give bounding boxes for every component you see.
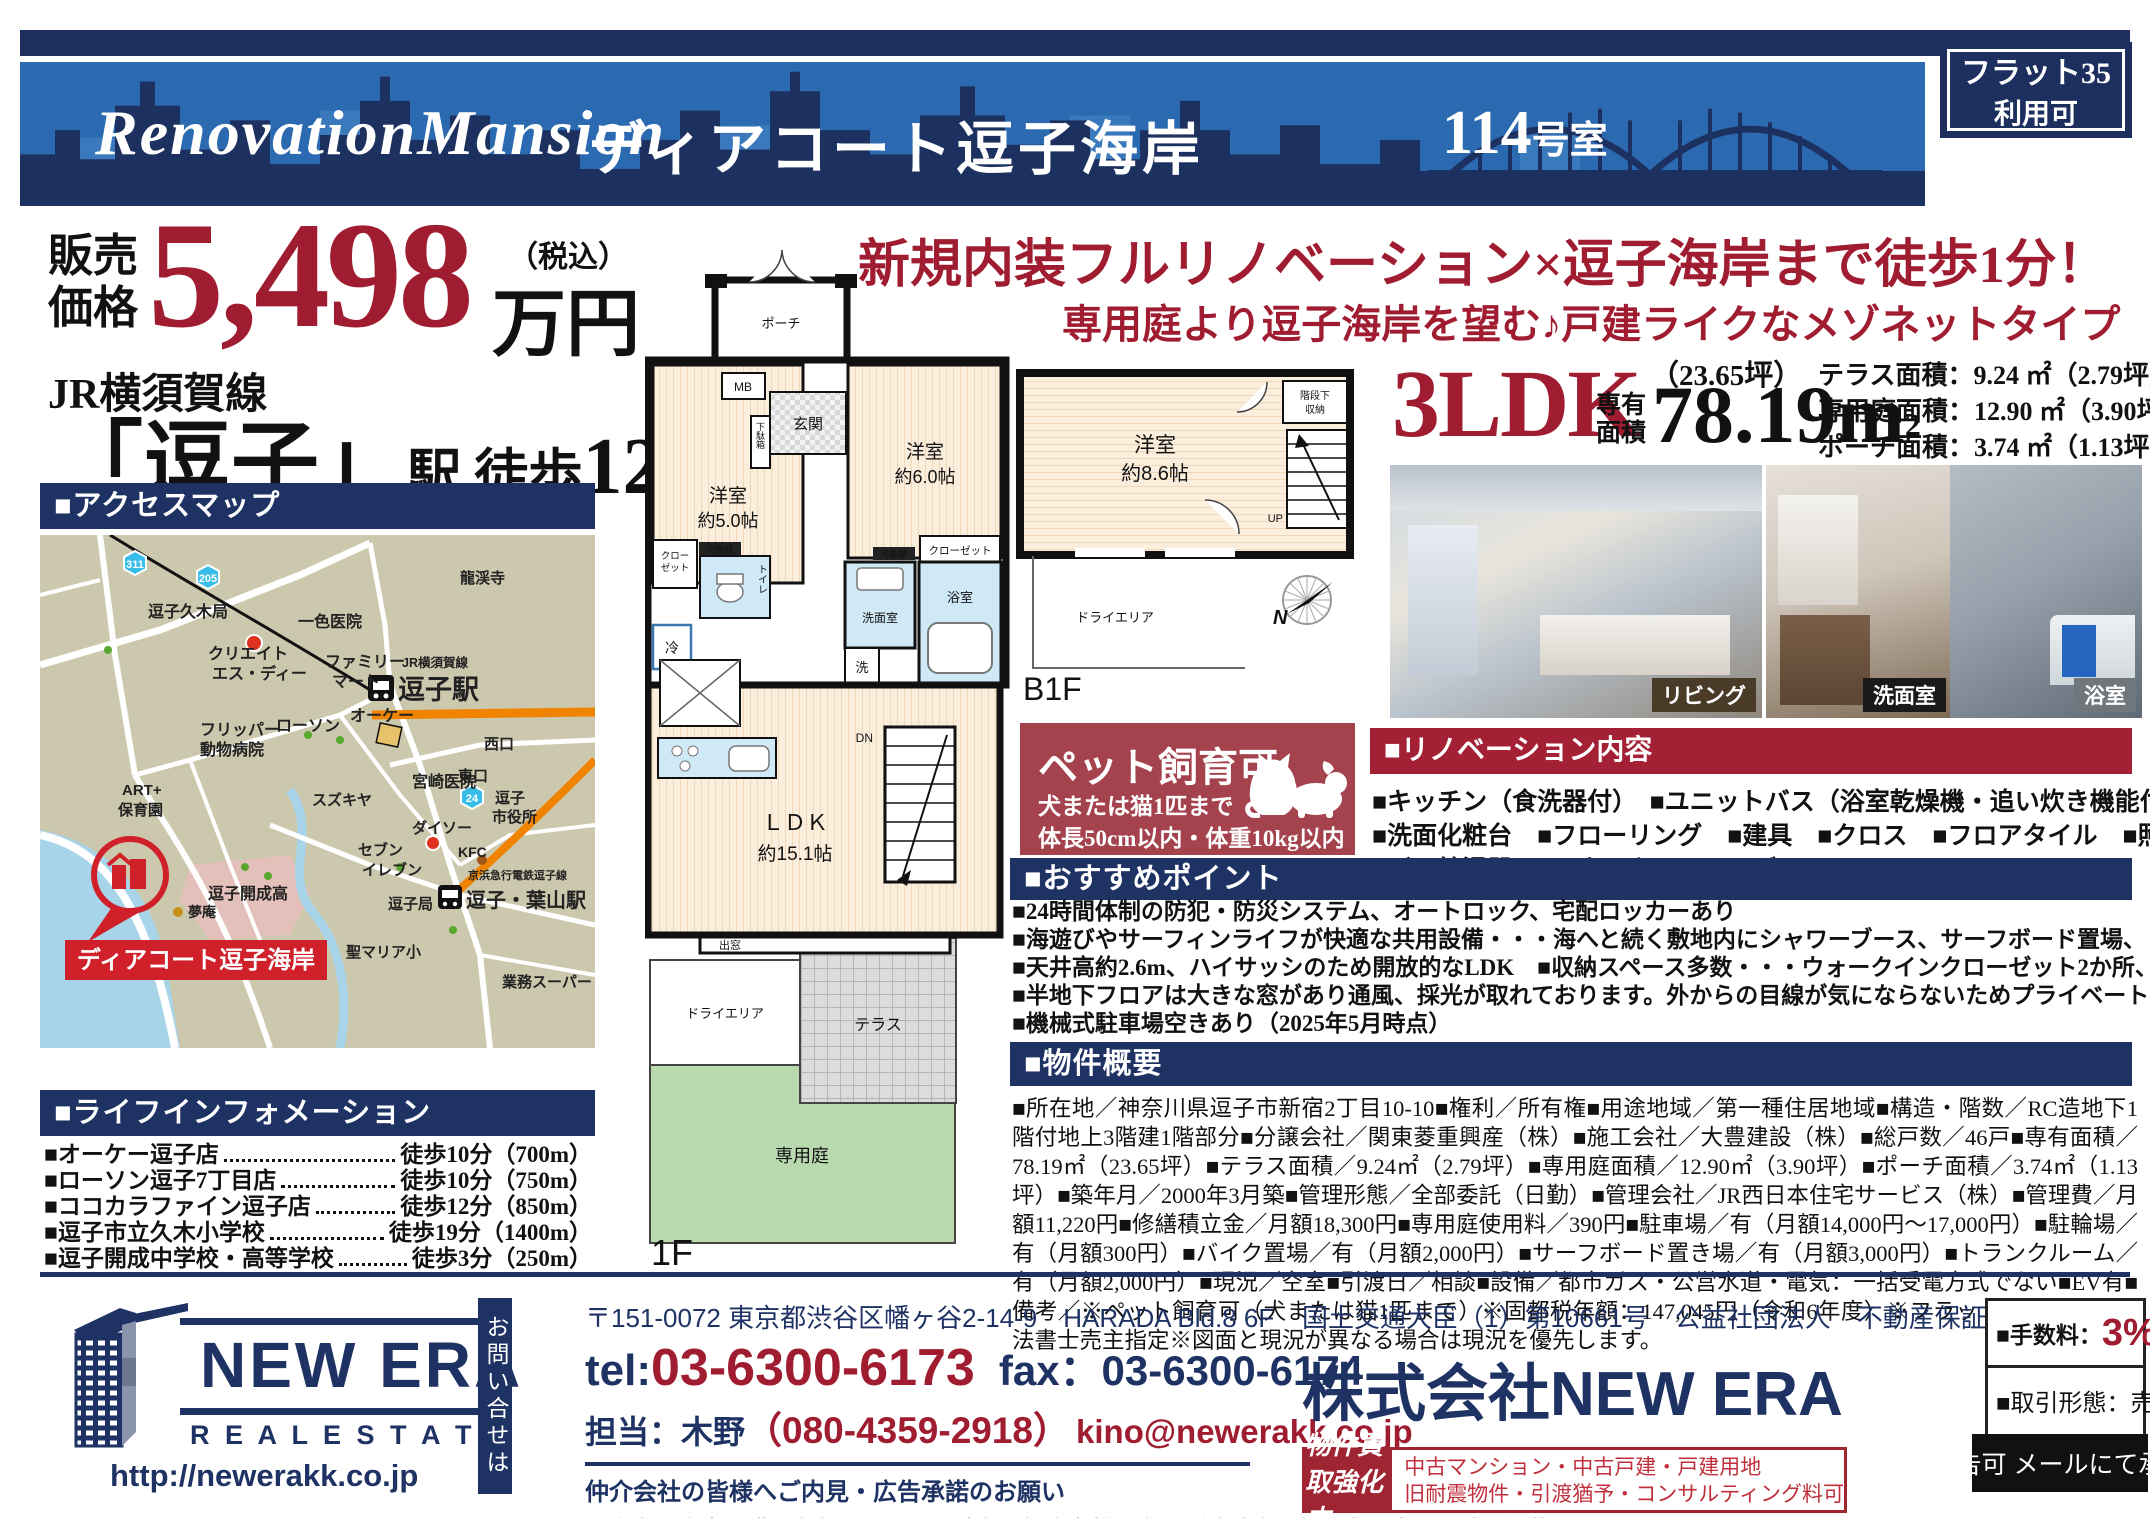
life-info-list: ■オーケー逗子店徒歩10分（700m） ■ローソン逗子7丁目店徒歩10分（750… [44,1143,592,1273]
contact-block: 〒151-0072 東京都渋谷区幡ヶ谷2-14-9 HARADA Bld.8 6… [585,1298,1250,1518]
label-shelf1: 可動棚 [707,544,733,554]
route-205-label: 205 [199,573,217,585]
stairs-down [885,727,955,882]
flat35-badge: フラット35 利用可 [1940,42,2132,138]
map-label-nishiguchi: 西口 [484,736,514,753]
map-label-miyazaki: 宮崎医院 [412,772,476,791]
map-label-seven2: イレブン [362,861,422,879]
label-porch: ポーチ [761,316,800,331]
headline-line1: 新規内装フルリノベーション×逗子海岸まで徒歩1分！ [858,222,2109,297]
label-closet-left1: クロー [661,551,690,562]
understairs-storage [1283,381,1347,423]
flat35-line1: フラット35 [1961,48,2111,92]
logo-sub: R E A L E S T A T E [190,1420,509,1451]
point-line: ■機械式駐車場空きあり（2025年5月時点） [1012,1010,2150,1038]
company-block: 国土交通大臣（1）第10661号 公益社団法人 不動産保証協会 株式会社NEW … [1302,1298,1847,1513]
room-number: 114号室 [1442,98,1608,169]
point-line: ■半地下フロアは大きな窓があり通風、採光が取れております。外からの目線が気になら… [1012,982,2150,1010]
list-item: ■逗子開成中学校・高等学校徒歩3分（250m） [44,1247,592,1273]
contact-rule-top [585,1462,1250,1466]
kaitori-detail: 中古マンション・中古戸建・戸建用地 旧耐震物件・引渡猶予・コンサルティング料可 [1392,1450,1844,1510]
map-dot-yumean [173,907,183,917]
label-b1f-bed2: 約8.6帖 [1121,462,1189,485]
points-list: ■24時間体制の防犯・防災システム、オートロック、宅配ロッカーあり ■海遊びやサ… [1012,898,2150,1038]
map-label-isshiki: 一色医院 [298,612,362,631]
pet-line2: 体長50cm以内・体重10kg以内 [1038,819,1345,853]
contact-person: 担当：木野 [585,1414,745,1450]
tel-label: tel: [585,1346,651,1395]
headline-line2: 専用庭より逗子海岸を望む♪戸建ライクなメゾネットタイプ [1062,292,2120,350]
map-label-gyomu: 業務スーパー [501,973,592,991]
header-top-strip [20,30,2130,56]
map-label-seven1: セブン [358,841,403,859]
point-line: ■天井高約2.6m、ハイサッシのため開放的なLDK ■収納スペース多数・・・ウォ… [1012,954,2150,982]
label-bay-window: 出窓 [719,938,741,952]
label-bathroom: 浴室 [947,590,973,605]
map-label-famima2: マート [332,674,380,691]
terrace-area-text: テラス面積：9.24 ㎡（2.79坪） [1818,358,2150,394]
label-washroom: 洗面室 [862,610,898,625]
header-banner: RenovationMansion ディアコート逗子海岸 114号室 [20,62,1925,206]
fee-box: ■手数料：3%（税込） ■取引形態：売主 [1985,1298,2146,1438]
property-name: ディアコート逗子海岸 [588,102,1204,186]
label-understairs1: 階段下 [1300,389,1330,402]
photo-label-washroom: 洗面室 [1863,678,1946,712]
map-marker-ok-store [376,723,402,747]
label-bed6a: 洋室 [906,441,944,463]
route-24-label: 24 [466,793,479,805]
property-label-text: ディアコート逗子海岸 [77,946,315,974]
porch-area-text: ポーチ面積：3.74 ㎡（1.13坪） [1818,430,2150,466]
map-label-art2: 保育園 [117,801,163,819]
company-name: 株式会社NEW ERA [1302,1343,1847,1433]
label-understairs2: 収納 [1305,403,1325,416]
map-label-flipper1: フリッパー [200,721,280,739]
company-address: 〒151-0072 東京都渋谷区幡ヶ谷2-14-9 HARADA Bld.8 6… [585,1298,1250,1335]
map-label-yumean: 夢庵 [188,904,217,920]
garden-area-text: 専用庭面積：12.90 ㎡（3.90坪） [1818,394,2150,430]
point-line: ■24時間体制の防犯・防災システム、オートロック、宅配ロッカーあり [1012,898,2150,926]
newera-logo: NEW ERA R E A L E S T A T E http://newer… [60,1296,520,1496]
room-number-suffix: 号室 [1532,120,1608,162]
label-terrace: テラス [854,1017,902,1034]
map-label-suzukiya: スズキヤ [312,791,372,809]
tel-fax-row: tel:03-6300-6173fax：03-6300-6174 [585,1337,1250,1398]
map-pin-daiso [426,836,440,850]
map-label-create2: エス・ディー [212,664,307,683]
fee-value: 3% [2102,1312,2150,1355]
contact-person-row: 担当：木野（080-4359-2918）kino@newerakk.co.jp [585,1400,1250,1454]
map-label-kfc: KFC [458,844,487,860]
access-map: 311 205 24 逗子久木局 一色医院 龍渓寺 クリエイト エス・ディー [40,535,595,1048]
map-label-famima1: ファミリー [325,654,405,671]
label-genkan: 玄関 [793,416,823,433]
cat-dog-icon [1232,737,1347,819]
notice-title: 仲介会社の皆様へご内見・広告承諾のお願い [585,1472,1250,1507]
map-label-zushi-station: 逗子駅 [398,675,479,705]
map-label-shiyakusho2: 市役所 [492,808,537,826]
area-label: 専有面積 [1596,392,1646,448]
label-bed5b: 約5.0帖 [697,511,758,531]
map-label-create1: クリエイト [208,645,288,663]
label-ldk1: ＬＤＫ [762,810,828,835]
footer-divider [40,1272,2130,1277]
kaitori-row: 物件買取強化中 中古マンション・中古戸建・戸建用地 旧耐震物件・引渡猶予・コンサ… [1302,1447,1847,1513]
label-getabako: 下駄箱 [755,422,765,450]
label-bed5a: 洋室 [709,485,747,507]
brand-title: RenovationMansion [95,96,666,170]
label-closet-right: クローゼット [929,545,992,557]
photo-washroom: 洗面室 [1766,465,1952,718]
inquiry-vertical-text: お問い合せは [478,1315,512,1477]
map-label-stmaria: 聖マリア小 [346,944,421,961]
logo-name: NEW ERA [200,1328,523,1402]
ad-ok-bar: 広告可 メールにて承諾 [1972,1434,2148,1492]
label-mb: MB [734,380,752,394]
access-map-header: ■アクセスマップ [40,483,595,529]
map-label-zushi-kuki: 逗子久木局 [148,602,228,621]
photo-label-living: リビング [1652,678,1756,712]
label-b1f: B1F [1023,671,1082,707]
label-garden: 専用庭 [775,1146,829,1166]
map-label-lawson: ローソン [276,718,340,735]
map-label-hayama-station: 逗子・葉山駅 [466,888,586,912]
map-label-ok-store: オーケー [350,707,414,725]
map-label-art1: ART+ [122,782,162,799]
pet-line1: 犬または猫1匹まで [1038,787,1234,821]
renovation-line: ■キッチン（食洗器付） ■ユニットバス（浴室乾燥機・追い炊き機能付） ■トイレ [1372,786,2150,820]
license-text: 国土交通大臣（1）第10661号 公益社団法人 不動産保証協会 [1302,1298,1847,1335]
label-up: UP [1268,513,1283,525]
points-header: ■おすすめポイント [1010,858,2132,900]
label-fridge: 冷 [665,640,679,656]
price-amount: 5,498 [148,188,470,362]
label-toilet: トイレ [756,564,768,594]
flyer-page: RenovationMansion ディアコート逗子海岸 114号室 フラット3… [0,0,2150,1518]
renovation-line: ■洗面化粧台 ■フローリング ■建具 ■クロス ■フロアタイル ■照明器具 [1372,820,2150,854]
label-bed6b: 約6.0帖 [894,467,955,487]
pet-allowed-box: ペット飼育可 犬または猫1匹まで 体長50cm以内・体重10kg以内 [1020,723,1355,855]
label-ldk2: 約15.1帖 [758,843,833,865]
floorplan-b1f: 洋室 約8.6帖 階段下 収納 UP ドライエリア B1F N [1015,360,1390,710]
fee-label: ■手数料： [1996,1316,2102,1350]
label-laundry: 洗 [855,660,868,675]
map-label-ryukeiji: 龍渓寺 [460,569,505,587]
label-dry-area: ドライエリア [686,1006,764,1021]
map-label-keikyu: 京浜急行電鉄逗子線 [468,868,567,882]
life-info-header: ■ライフインフォメーション [40,1090,595,1136]
building-icon [60,1298,190,1453]
flat35-badge-border: フラット35 利用可 [1947,49,2125,131]
label-b1f-dry-area: ドライエリア [1076,610,1154,625]
notice-line1: ご案内・広告承諾は名刺もしくは御社名・担当者様氏名・ご連絡先・物件名号室・日時を… [585,1510,1250,1518]
photo-living: リビング [1390,465,1762,718]
label-north: N [1273,607,1288,629]
deal-type-cell: ■取引形態：売主 [1988,1368,2143,1432]
map-label-shiyakusho1: 逗子 [495,790,525,807]
price-unit: 万円 [492,264,640,371]
fee-cell: ■手数料：3%（税込） [1988,1301,2143,1368]
photo-bathroom: 浴室 [1950,465,2142,718]
kaitori-label: 物件買取強化中 [1305,1450,1392,1510]
photo-label-bathroom: 浴室 [2074,678,2136,712]
map-label-zushikyoku: 逗子局 [388,896,433,913]
map-label-daiso: ダイソー [412,819,472,837]
sub-areas: テラス面積：9.24 ㎡（2.79坪） 専用庭面積：12.90 ㎡（3.90坪）… [1818,358,2150,466]
label-shelf2: 可動棚 [881,549,907,559]
price-label: 販売価格 [48,230,138,334]
overview-header: ■物件概要 [1010,1042,2132,1086]
label-1f: 1F [651,1232,693,1270]
route-311-label: 311 [126,559,144,571]
floorplan-1f: ポーチ MB 玄関 下駄箱 洋室 約5.0帖 洋室 約6.0帖 クローゼット ク… [645,240,1010,1270]
label-b1f-bed1: 洋室 [1134,434,1176,457]
map-label-jr-line: JR横須賀線 [402,655,468,670]
label-closet-left2: ゼット [661,562,690,574]
flat35-line2: 利用可 [1994,92,2078,132]
renovation-header: ■リノベーション内容 [1370,728,2132,774]
room-number-value: 114 [1442,99,1532,167]
logo-url: http://newerakk.co.jp [110,1458,418,1494]
point-line: ■海遊びやサーフィンライフが快適な共用設備・・・海へと続く敷地内にシャワーブース… [1012,926,2150,954]
tel-number: 03-6300-6173 [651,1339,975,1397]
mobile-number: （080-4359-2918） [745,1410,1070,1451]
label-dn: DN [856,731,873,745]
inquiry-vertical-bar: お問い合せは [478,1298,512,1494]
map-label-flipper2: 動物病院 [200,740,264,759]
compass-icon: N [1273,576,1333,629]
map-label-kaisei: 逗子開成高 [208,884,288,903]
